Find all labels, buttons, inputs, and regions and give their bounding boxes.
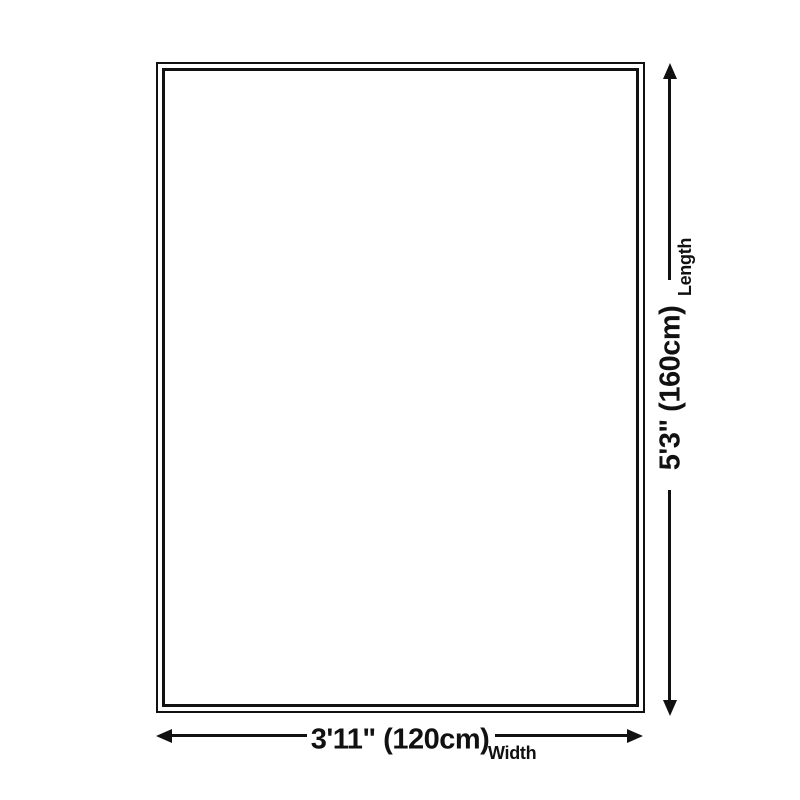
length-dimension-line-upper (668, 78, 671, 280)
arrow-down-icon (663, 700, 677, 716)
width-dimension-line-right (495, 734, 627, 737)
arrow-left-icon (156, 729, 172, 743)
length-value: 5'3" (160cm) (657, 306, 686, 471)
arrow-right-icon (627, 729, 643, 743)
product-outline (156, 62, 645, 713)
size-diagram: Length 5'3" (160cm) 3'11" (120cm) Width (0, 0, 800, 800)
arrow-up-icon (663, 63, 677, 79)
length-dimension-line-lower (668, 490, 671, 700)
product-outline-inner-border (162, 68, 639, 707)
length-label: Length (676, 238, 694, 296)
width-value: 3'11" (120cm) (311, 726, 490, 755)
width-dimension-line-left (172, 734, 307, 737)
width-label: Width (488, 744, 536, 762)
